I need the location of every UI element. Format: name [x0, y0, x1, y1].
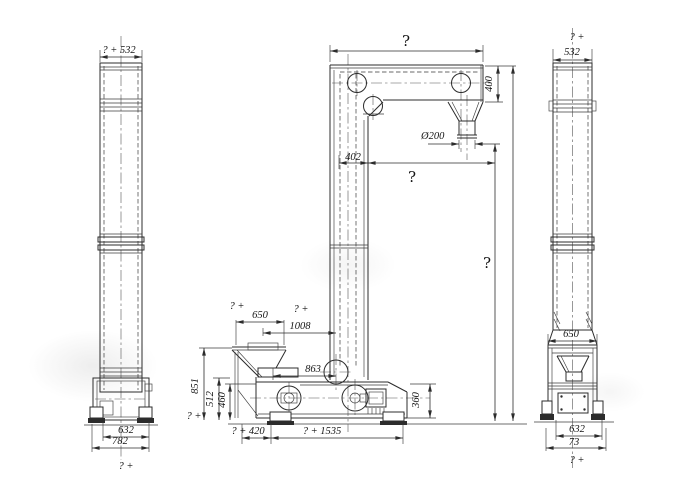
right-foot — [593, 401, 603, 414]
left-dim-782-label: 782 — [112, 436, 129, 447]
center-dim-extensions — [199, 45, 516, 444]
bucket-elevator-drawing: ? + 532 632 782 ? + — [0, 0, 700, 491]
inlet-note-label: ? + — [294, 304, 309, 315]
dim-1008-label: 1008 — [290, 321, 312, 332]
left-bottom-note: ? + — [119, 461, 134, 472]
door-bolt — [560, 395, 562, 397]
left-foot — [90, 407, 103, 418]
dim-400-label: 400 — [484, 75, 495, 92]
right-flange-tab — [592, 101, 596, 111]
offset-label: ? — [408, 168, 416, 186]
center-centerlines — [250, 54, 492, 432]
dim-420-label: ? + 420 — [231, 426, 265, 437]
door-bolt — [560, 408, 562, 410]
left-side-view: ? + 532 632 782 ? + — [84, 36, 158, 472]
dim-1535-label: ? + 1535 — [303, 426, 342, 437]
right-foot — [542, 401, 552, 414]
head-width-label: ? — [402, 32, 410, 50]
left-foot-plate — [137, 418, 154, 423]
right-hopper-throat — [566, 372, 582, 381]
hopper-note-label: ? + — [230, 301, 245, 312]
right-dim-73-label: 73 — [569, 437, 580, 448]
dim-863-label: 863 — [305, 364, 321, 375]
boot-foot — [383, 412, 404, 421]
right-dim-650-label: 650 — [563, 329, 580, 340]
dim-512-label: 512 — [205, 390, 216, 407]
right-flange-tab — [549, 101, 553, 111]
right-side-view: ? + 532 650 632 73 ? + — [534, 28, 614, 470]
dim-360-label: 360 — [411, 391, 422, 409]
door-bolt — [583, 395, 585, 397]
dim-851-label: 851 — [190, 378, 201, 394]
boot-foot — [270, 412, 291, 421]
left-dim-632-label: 632 — [118, 425, 135, 436]
right-bottom-note: ? + — [570, 455, 585, 466]
left-dim-top-label: ? + 532 — [102, 45, 136, 56]
dim-402-label: 402 — [345, 152, 362, 163]
dim-650-label: 650 — [252, 310, 269, 321]
dim-460-label: 460 — [217, 391, 228, 408]
left-foot-plate — [88, 418, 105, 423]
discharge-height-label: ? — [483, 254, 491, 272]
right-foot-plate — [591, 414, 605, 420]
right-foot-plate — [540, 414, 554, 420]
right-top-note: ? + — [570, 32, 585, 43]
door-bolt — [583, 408, 585, 410]
right-dim-532-label: 532 — [564, 47, 581, 58]
technical-drawing-page: ? + 532 632 782 ? + — [0, 0, 700, 491]
ground-note-label: ? + — [187, 411, 202, 422]
belt-lines — [340, 72, 478, 368]
elevator-outline — [232, 65, 483, 418]
right-dim-632-label: 632 — [569, 424, 586, 435]
dim-spout-label: Ø200 — [420, 131, 445, 142]
center-front-view: ? ? ? 400 Ø200 402 ? + 650 ? + 1008 863 … — [187, 32, 527, 444]
left-foot — [139, 407, 152, 418]
